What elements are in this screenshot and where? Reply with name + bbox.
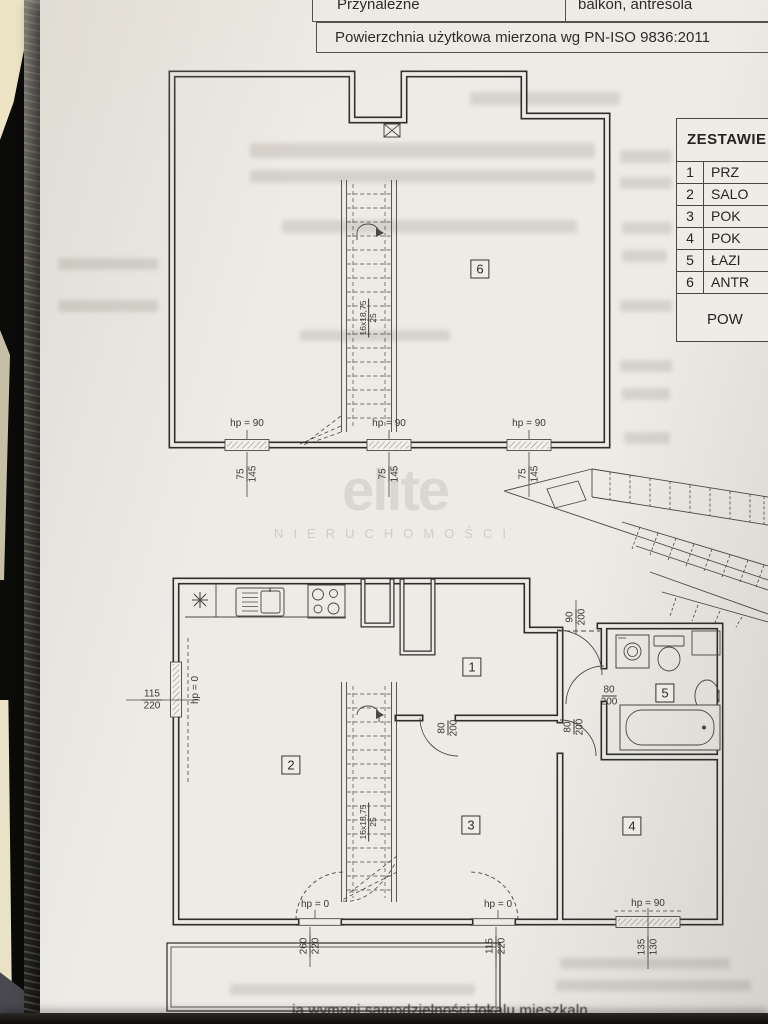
room-number-3: 3	[461, 816, 480, 835]
photographed-floorplan-document: elite NIERUCHOMOŚCI	[0, 0, 768, 1024]
window-sill-height-label: hp = 90	[512, 419, 546, 430]
attribute-value: balkon, antresola	[565, 0, 768, 21]
balcony-door-dimension-label: 115220	[485, 936, 508, 957]
bath-door-dimension-label: 80200	[599, 685, 620, 708]
window-dimension-label: 75145	[378, 464, 401, 485]
room4-door-dimension-label: 80200	[563, 717, 586, 738]
balcony-door-sill-label: hp = 0	[301, 900, 329, 911]
toilet-icon	[654, 636, 684, 671]
room4-window-dimension-label: 135130	[637, 937, 660, 958]
balcony-outline	[167, 943, 500, 1011]
stairs-upper	[300, 180, 397, 445]
balcony-door-sill-label: hp = 0	[484, 900, 512, 911]
stairs-dimension-label: 16x18,7525	[359, 803, 379, 842]
window-sill-height-label: hp = 90	[372, 419, 406, 430]
upper-plan	[172, 74, 607, 497]
window-symbol	[171, 662, 182, 717]
roof-sketch	[504, 469, 768, 627]
sink-icon	[236, 588, 284, 616]
legend-row: 6 ANTR	[677, 272, 768, 294]
lower-plan	[126, 581, 720, 1011]
room-number-4: 4	[622, 817, 641, 836]
legend-row: 4 POK	[677, 228, 768, 250]
room-number-1: 1	[462, 658, 481, 677]
floor-plan-svg	[0, 0, 768, 1024]
attribute-table-row: Przynależne balkon, antresola	[312, 0, 768, 22]
legend-title: ZESTAWIE	[677, 119, 768, 162]
stairs-dimension-label: 16x18,7525	[359, 299, 379, 338]
legend-row: 2 SALO	[677, 184, 768, 206]
room-number-5: 5	[655, 684, 674, 703]
room4-window-sill-label: hp = 90	[631, 899, 665, 910]
bathtub-icon	[620, 705, 720, 750]
window-dimension-label: 75145	[236, 464, 259, 485]
measurement-note-row: Powierzchnia użytkowa mierzona wg PN-ISO…	[316, 22, 768, 53]
legend-footer: POW	[677, 294, 768, 344]
balcony-door-dimension-label: 260220	[299, 936, 322, 957]
legend-row: 1 PRZ	[677, 162, 768, 184]
left-window-sill-height-label: hp = 0	[191, 676, 202, 704]
legend-row: 3 POK	[677, 206, 768, 228]
stove-icon	[308, 585, 345, 618]
x-box-icon	[384, 124, 400, 137]
washing-machine-icon	[616, 635, 649, 668]
window-dimension-label: 75145	[518, 464, 541, 485]
kitchen-counter	[185, 583, 346, 618]
stairs-direction-arrow	[376, 710, 384, 719]
photo-bottom-edge	[0, 1013, 768, 1024]
room-legend-table: ZESTAWIE 1 PRZ 2 SALO 3 POK 4 POK 5 ŁAZI…	[676, 118, 768, 342]
legend-row: 5 ŁAZI	[677, 250, 768, 272]
entrance-door-dimension-label: 90200	[565, 607, 588, 628]
asterisk-icon	[192, 592, 208, 608]
room-number-6: 6	[470, 260, 489, 279]
room3-door-dimension-label: 80200	[437, 718, 460, 739]
cabinet-icon	[692, 631, 720, 655]
stairs-lower	[342, 682, 398, 902]
window-sill-height-label: hp = 90	[230, 419, 264, 430]
attribute-label: Przynależne	[313, 0, 565, 13]
left-window-dimension-label: 115220	[142, 689, 163, 712]
room-number-2: 2	[281, 756, 300, 775]
